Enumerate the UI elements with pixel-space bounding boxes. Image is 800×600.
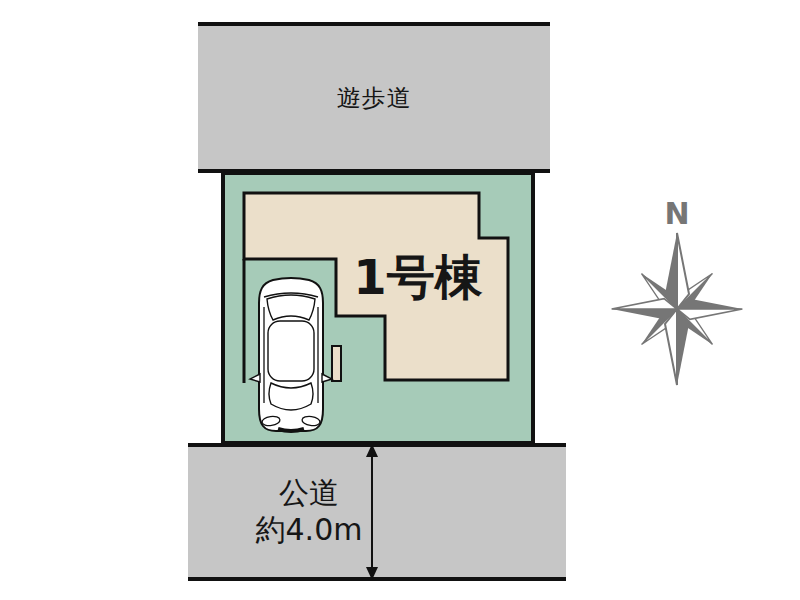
partition-wall — [332, 346, 341, 381]
car-icon — [250, 278, 332, 431]
site-plan-canvas: 遊歩道 公道 約4.0m — [0, 0, 800, 600]
compass-rose-icon — [595, 217, 759, 401]
building-label: 1号棟 — [338, 249, 498, 305]
road-width-arrow-icon — [366, 444, 378, 580]
